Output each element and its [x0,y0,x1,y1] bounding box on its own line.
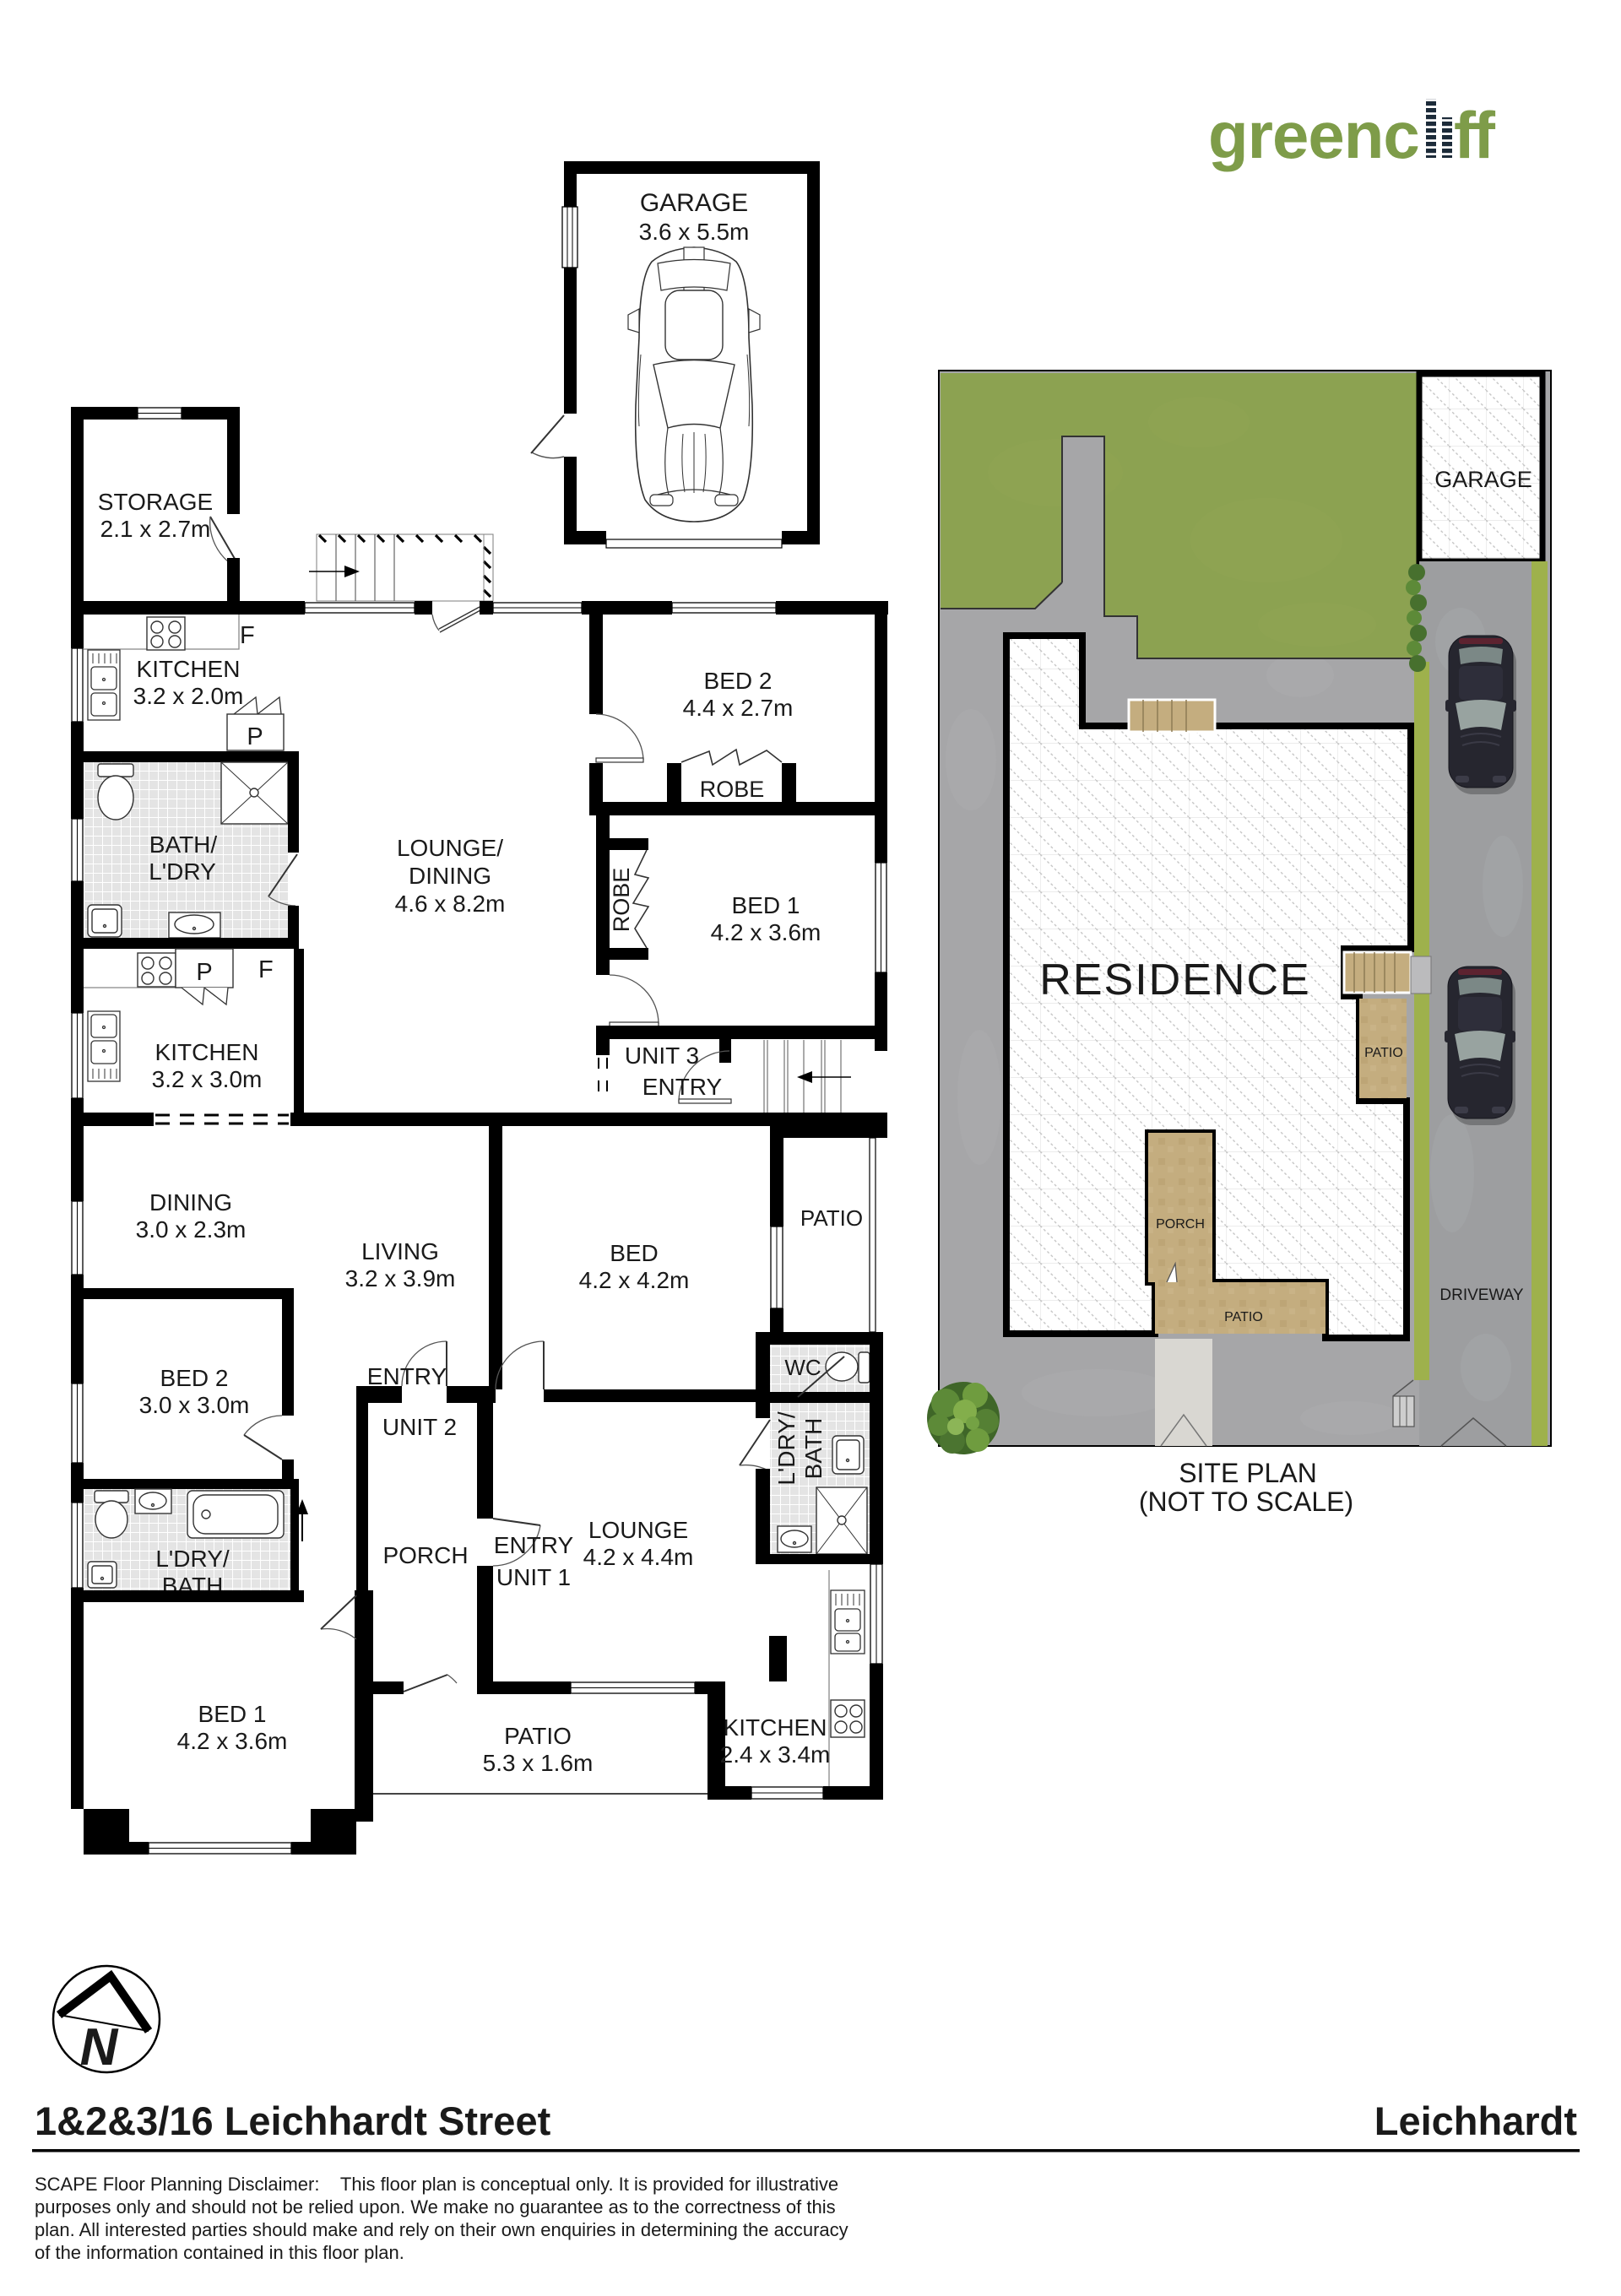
svg-text:KITCHEN: KITCHEN [724,1714,827,1741]
svg-text:3.6 x 5.5m: 3.6 x 5.5m [639,219,750,245]
svg-text:DINING: DINING [409,863,491,889]
svg-text:4.6 x 8.2m: 4.6 x 8.2m [395,891,506,917]
svg-text:ENTRY: ENTRY [494,1532,574,1558]
svg-text:UNIT 2: UNIT 2 [382,1414,457,1440]
svg-text:F: F [240,622,255,649]
svg-text:purposes only and should not b: purposes only and should not be relied u… [35,2196,836,2217]
svg-text:5.3 x 1.6m: 5.3 x 1.6m [483,1750,594,1776]
svg-text:LOUNGE: LOUNGE [588,1517,688,1543]
svg-text:plan. All interested parties s: plan. All interested parties should make… [35,2219,848,2240]
svg-text:N: N [80,2018,119,2077]
svg-text:ROBE: ROBE [700,777,765,802]
svg-text:STORAGE: STORAGE [98,489,213,515]
svg-text:GARAGE: GARAGE [640,189,748,217]
svg-text:KITCHEN: KITCHEN [137,656,241,682]
svg-text:(NOT TO SCALE): (NOT TO SCALE) [1139,1486,1353,1517]
svg-text:LIVING: LIVING [361,1238,439,1264]
svg-text:P: P [247,723,263,750]
svg-text:Leichhardt: Leichhardt [1374,2098,1578,2143]
svg-text:UNIT 1: UNIT 1 [496,1564,571,1590]
svg-text:UNIT 3: UNIT 3 [625,1042,699,1069]
svg-text:ff: ff [1454,98,1496,172]
svg-text:4.2 x 3.6m: 4.2 x 3.6m [711,919,821,945]
svg-text:GARAGE: GARAGE [1434,467,1532,492]
svg-text:greenc: greenc [1208,98,1419,172]
svg-text:1&2&3/16 Leichhardt Street: 1&2&3/16 Leichhardt Street [35,2098,551,2143]
svg-text:PATIO: PATIO [1364,1046,1403,1060]
svg-text:3.0 x 2.3m: 3.0 x 2.3m [136,1216,247,1243]
svg-text:of the information contained i: of the information contained in this flo… [35,2242,404,2263]
svg-text:3.2 x 2.0m: 3.2 x 2.0m [133,683,244,709]
svg-text:4.4 x 2.7m: 4.4 x 2.7m [683,695,794,721]
svg-text:3.2 x 3.0m: 3.2 x 3.0m [152,1066,263,1092]
svg-text:F: F [258,956,274,983]
svg-text:PORCH: PORCH [382,1542,468,1568]
svg-text:LOUNGE/: LOUNGE/ [397,835,503,861]
svg-text:SITE PLAN: SITE PLAN [1179,1458,1317,1488]
svg-text:PATIO: PATIO [504,1723,572,1749]
svg-text:ROBE: ROBE [609,868,634,933]
svg-text:PATIO: PATIO [1224,1310,1263,1324]
svg-text:L'DRY/: L'DRY/ [155,1546,230,1572]
svg-text:WC: WC [784,1355,821,1380]
svg-text:DINING: DINING [149,1189,232,1216]
svg-text:3.2 x 3.9m: 3.2 x 3.9m [345,1265,456,1291]
svg-text:L'DRY/: L'DRY/ [773,1411,800,1486]
svg-text:PORCH: PORCH [1156,1217,1205,1232]
svg-text:BED 1: BED 1 [198,1701,267,1727]
svg-text:L'DRY: L'DRY [149,858,216,885]
svg-text:RESIDENCE: RESIDENCE [1039,956,1310,1004]
svg-text:ENTRY: ENTRY [367,1363,447,1389]
svg-text:2.1 x 2.7m: 2.1 x 2.7m [100,516,211,542]
svg-text:BED 2: BED 2 [704,668,773,694]
svg-text:ENTRY: ENTRY [642,1074,723,1100]
svg-text:4.2 x 4.4m: 4.2 x 4.4m [583,1544,694,1570]
svg-text:DRIVEWAY: DRIVEWAY [1439,1286,1524,1304]
svg-text:BED 2: BED 2 [160,1365,229,1391]
svg-text:BATH: BATH [800,1418,827,1480]
svg-text:BED: BED [610,1240,659,1266]
svg-text:3.0 x 3.0m: 3.0 x 3.0m [139,1392,250,1418]
svg-text:PATIO: PATIO [800,1205,863,1231]
svg-text:KITCHEN: KITCHEN [155,1039,259,1065]
svg-text:SCAPE Floor Planning Disclaime: SCAPE Floor Planning Disclaimer: This fl… [35,2174,838,2195]
svg-text:BED 1: BED 1 [732,892,800,918]
svg-text:4.2 x 4.2m: 4.2 x 4.2m [579,1267,690,1293]
svg-text:P: P [196,959,212,986]
svg-text:BATH/: BATH/ [149,831,218,858]
svg-text:2.4 x 3.4m: 2.4 x 3.4m [720,1741,831,1768]
svg-text:4.2 x 3.6m: 4.2 x 3.6m [177,1728,288,1754]
